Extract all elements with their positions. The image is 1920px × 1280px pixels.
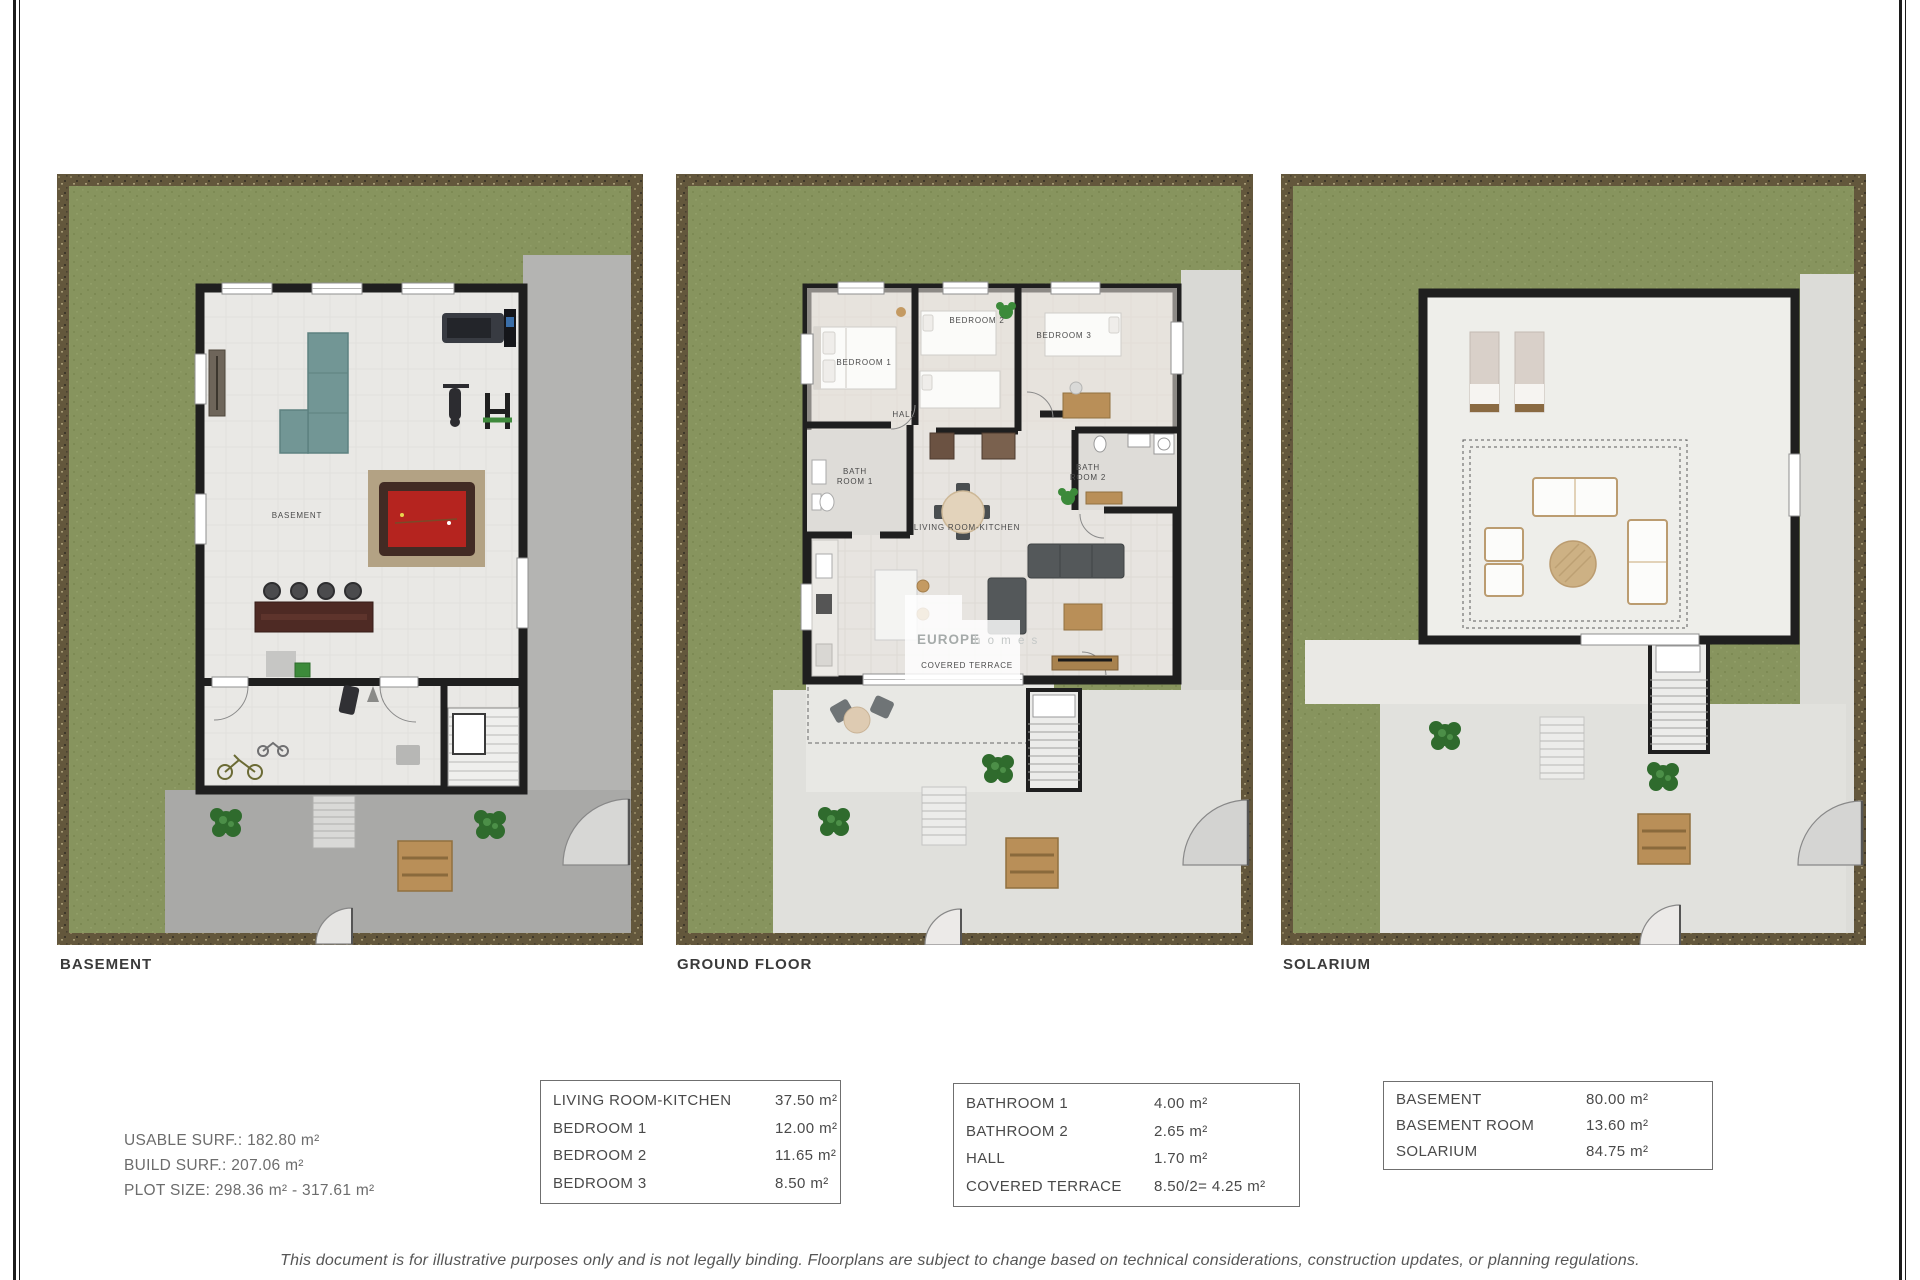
pot-plant (896, 307, 906, 317)
wall-opening (1581, 634, 1699, 645)
solarium-roof-terrace (1423, 293, 1800, 645)
table-row: COVERED TERRACE 8.50/2= 4.25 m² (954, 1178, 1299, 1195)
room-name: BEDROOM 2 (553, 1147, 775, 1164)
bar-stool (264, 583, 280, 599)
watermark-brand-suffix: h o m e s (974, 635, 1039, 647)
washer (1154, 434, 1174, 454)
basement-house: BASEMENT (195, 283, 528, 790)
table-row: LIVING ROOM-KITCHEN 37.50 m² (541, 1092, 840, 1109)
garden-stairs (922, 787, 966, 845)
garden-stairs (313, 796, 355, 848)
outdoor-daybed (1628, 520, 1667, 604)
table-row: BEDROOM 2 11.65 m² (541, 1147, 840, 1164)
garden-stairs (1540, 717, 1584, 779)
toilet (1094, 436, 1106, 452)
wall-shelf (209, 350, 225, 416)
wooden-deck (1638, 814, 1690, 864)
terrace-walkway (1305, 640, 1650, 704)
stool (917, 580, 929, 592)
room-label: BATH (1076, 463, 1100, 472)
room-name: BEDROOM 1 (553, 1120, 775, 1137)
table-row: SOLARIUM 84.75 m² (1384, 1143, 1712, 1160)
plot-size: PLOT SIZE: 298.36 m² - 317.61 m² (124, 1178, 375, 1203)
build-surface: BUILD SURF.: 207.06 m² (124, 1153, 375, 1178)
room-area: 8.50 m² (775, 1175, 829, 1192)
area-table-baths: BATHROOM 1 4.00 m² BATHROOM 2 2.65 m² HA… (953, 1083, 1300, 1207)
room-name: BASEMENT (1396, 1091, 1586, 1108)
table-row: BATHROOM 1 4.00 m² (954, 1095, 1299, 1112)
pool-table (368, 470, 485, 567)
kitchen-sink (816, 554, 832, 578)
room-label: HALL (892, 410, 915, 419)
exterior-staircase (1650, 640, 1708, 752)
room-area: 37.50 m² (775, 1092, 837, 1109)
room-name: LIVING ROOM-KITCHEN (553, 1092, 775, 1109)
caption-solarium: SOLARIUM (1283, 956, 1371, 973)
door-frame (212, 677, 248, 687)
room-area: 1.70 m² (1154, 1150, 1208, 1167)
chair (1070, 382, 1082, 394)
table-row: BATHROOM 2 2.65 m² (954, 1123, 1299, 1140)
area-table-rooms: LIVING ROOM-KITCHEN 37.50 m² BEDROOM 1 1… (540, 1080, 841, 1204)
room-name: BATHROOM 1 (966, 1095, 1154, 1112)
page-border-left-inner (19, 0, 20, 1280)
room-label: BEDROOM 1 (836, 358, 891, 367)
table-row: BEDROOM 3 8.50 m² (541, 1175, 840, 1192)
sink (1128, 434, 1150, 447)
room-area: 8.50/2= 4.25 m² (1154, 1178, 1265, 1195)
outdoor-sofa (1533, 478, 1617, 516)
bar-stool (345, 583, 361, 599)
caption-ground-floor: GROUND FLOOR (677, 956, 812, 973)
watermark-brand: EUROPE (917, 632, 980, 647)
toilet (820, 493, 834, 511)
plant (295, 663, 310, 677)
table-row: BEDROOM 1 12.00 m² (541, 1120, 840, 1137)
sun-lounger (1470, 332, 1499, 412)
sun-lounger (1515, 332, 1544, 412)
table-row: HALL 1.70 m² (954, 1150, 1299, 1167)
room-label: ROOM 2 (1070, 473, 1106, 482)
wooden-deck (398, 841, 452, 891)
outdoor-chair (1485, 528, 1523, 561)
terrace-slab (806, 680, 1054, 792)
stair-landing (453, 714, 485, 754)
room-label: BATH (843, 467, 867, 476)
sideboard (1086, 492, 1122, 504)
room-area: 2.65 m² (1154, 1123, 1208, 1140)
room-area: 12.00 m² (775, 1120, 837, 1137)
bar-stool (318, 583, 334, 599)
room-label: ROOM 1 (837, 477, 873, 486)
room-area: 13.60 m² (1586, 1117, 1648, 1134)
room-area: 80.00 m² (1586, 1091, 1648, 1108)
wall-opening (1789, 454, 1800, 516)
desk (1063, 393, 1110, 418)
room-area: 11.65 m² (775, 1147, 836, 1164)
room-label: LIVING ROOM-KITCHEN (914, 523, 1020, 532)
page-border-right-outer (1899, 0, 1902, 1280)
room-name: BATHROOM 2 (966, 1123, 1154, 1140)
wardrobe (930, 433, 954, 459)
coffee-table (1064, 604, 1102, 630)
floorplan-solarium (1281, 174, 1866, 945)
caption-basement: BASEMENT (60, 956, 152, 973)
outdoor-chair (1485, 564, 1523, 596)
tv-console (1052, 656, 1118, 670)
sink (812, 460, 826, 484)
usable-surface: USABLE SURF.: 182.80 m² (124, 1128, 375, 1153)
door-frame (380, 677, 418, 687)
room-label: BEDROOM 2 (949, 316, 1004, 325)
room-name: BEDROOM 3 (553, 1175, 775, 1192)
legal-disclaimer: This document is for illustrative purpos… (0, 1252, 1920, 1270)
room-name: BASEMENT ROOM (1396, 1117, 1586, 1134)
basement-room-label: BASEMENT (272, 511, 322, 520)
exterior-staircase (1028, 690, 1080, 790)
room-area: 84.75 m² (1586, 1143, 1648, 1160)
page-border-right-inner (1905, 0, 1906, 1280)
floorplan-ground-floor: BEDROOM 1 BEDROOM 2 BEDROOM 3 HALL (676, 174, 1253, 945)
room-name: SOLARIUM (1396, 1143, 1586, 1160)
treadmill (442, 309, 516, 347)
ground-house: BEDROOM 1 BEDROOM 2 BEDROOM 3 HALL (801, 282, 1183, 685)
bar-stool (291, 583, 307, 599)
room-label: BEDROOM 3 (1036, 331, 1091, 340)
floorplan-basement: BASEMENT (57, 174, 643, 945)
mat (396, 745, 420, 765)
wooden-deck (1006, 838, 1058, 888)
area-table-levels: BASEMENT 80.00 m² BASEMENT ROOM 13.60 m²… (1383, 1081, 1713, 1170)
room-area: 4.00 m² (1154, 1095, 1208, 1112)
table-row: BASEMENT ROOM 13.60 m² (1384, 1117, 1712, 1134)
room-name: COVERED TERRACE (966, 1178, 1154, 1195)
table-row: BASEMENT 80.00 m² (1384, 1091, 1712, 1108)
fridge (816, 644, 832, 666)
surface-summary: USABLE SURF.: 182.80 m² BUILD SURF.: 207… (124, 1128, 375, 1203)
floorplan-sheet: BASEMENT (0, 0, 1920, 1280)
floor-mat (266, 651, 296, 677)
wardrobe (982, 433, 1015, 459)
room-label: COVERED TERRACE (921, 661, 1013, 670)
room-name: HALL (966, 1150, 1154, 1167)
page-border-left-outer (13, 0, 16, 1280)
round-table (1550, 541, 1596, 587)
stove (816, 594, 832, 614)
